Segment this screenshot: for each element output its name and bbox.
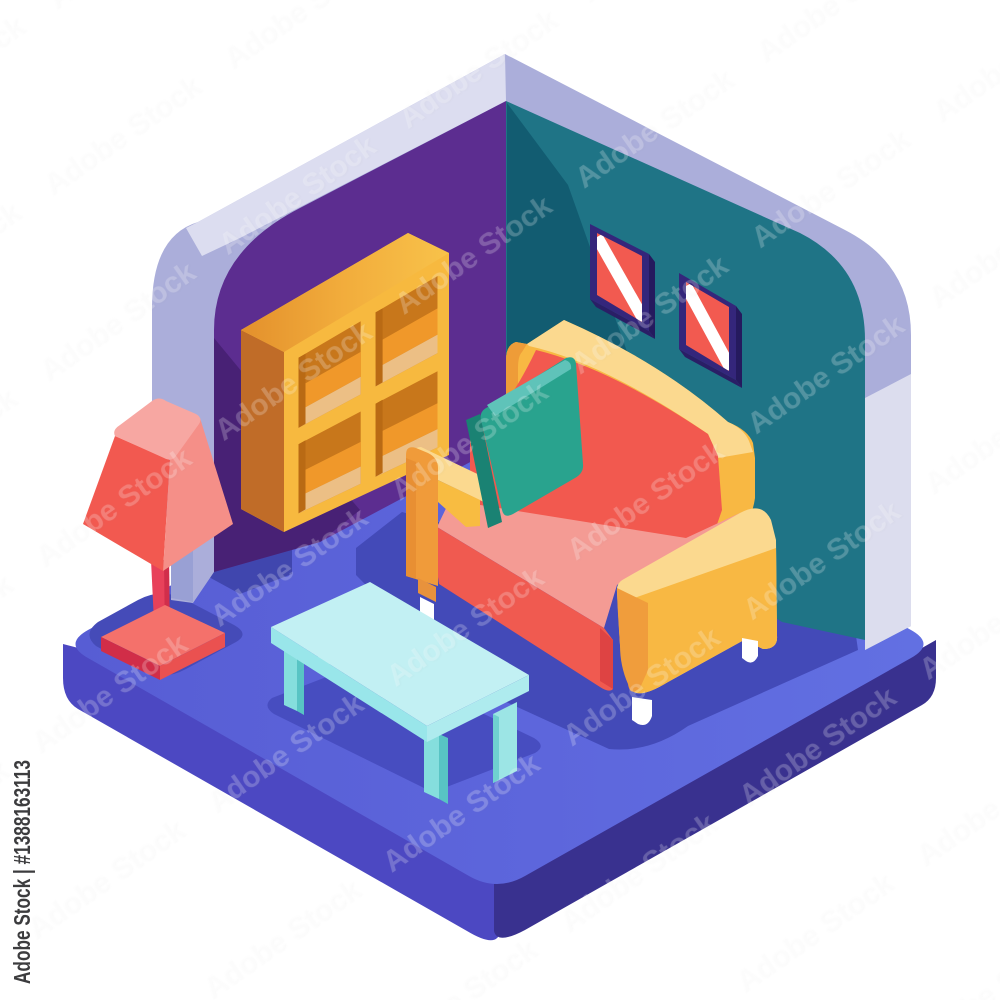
svg-text:Adobe Stock | #1388163113: Adobe Stock | #1388163113 [11, 760, 36, 984]
